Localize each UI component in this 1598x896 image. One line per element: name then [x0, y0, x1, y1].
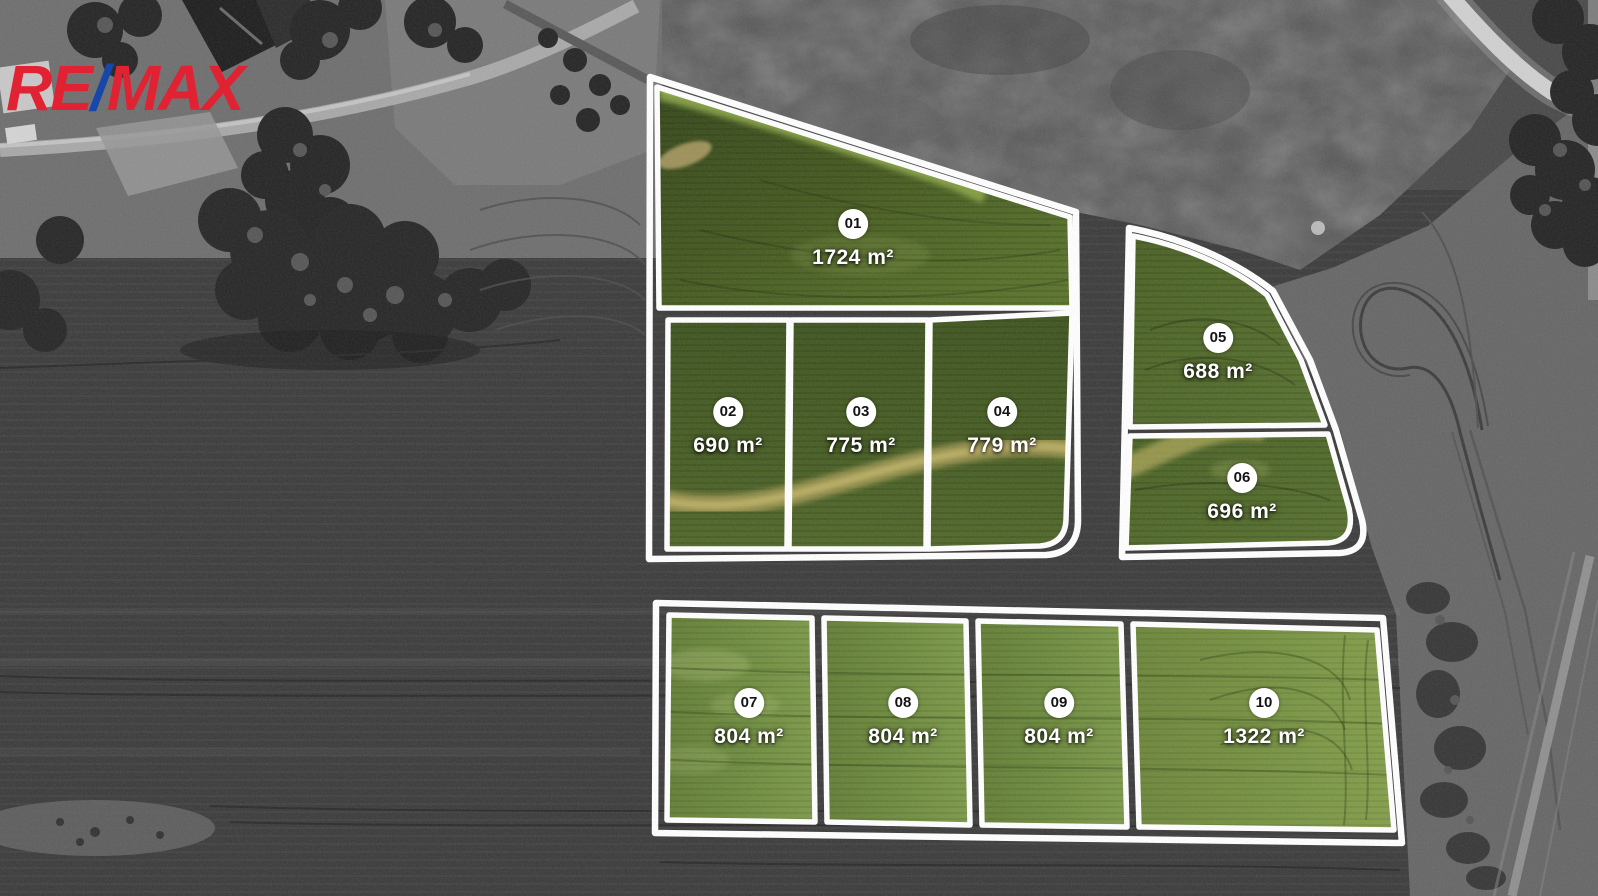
remax-logo: RE/MAX: [6, 56, 243, 120]
aerial-photo-graphic: [0, 0, 1598, 896]
photo-grain: [0, 0, 1598, 896]
remax-logo-re: RE: [6, 52, 91, 124]
remax-logo-slash: /: [91, 52, 107, 124]
remax-logo-max: MAX: [107, 52, 243, 124]
aerial-plot-map: RE/MAX 01 1724 m² 02 690 m² 03 775 m² 04…: [0, 0, 1598, 896]
